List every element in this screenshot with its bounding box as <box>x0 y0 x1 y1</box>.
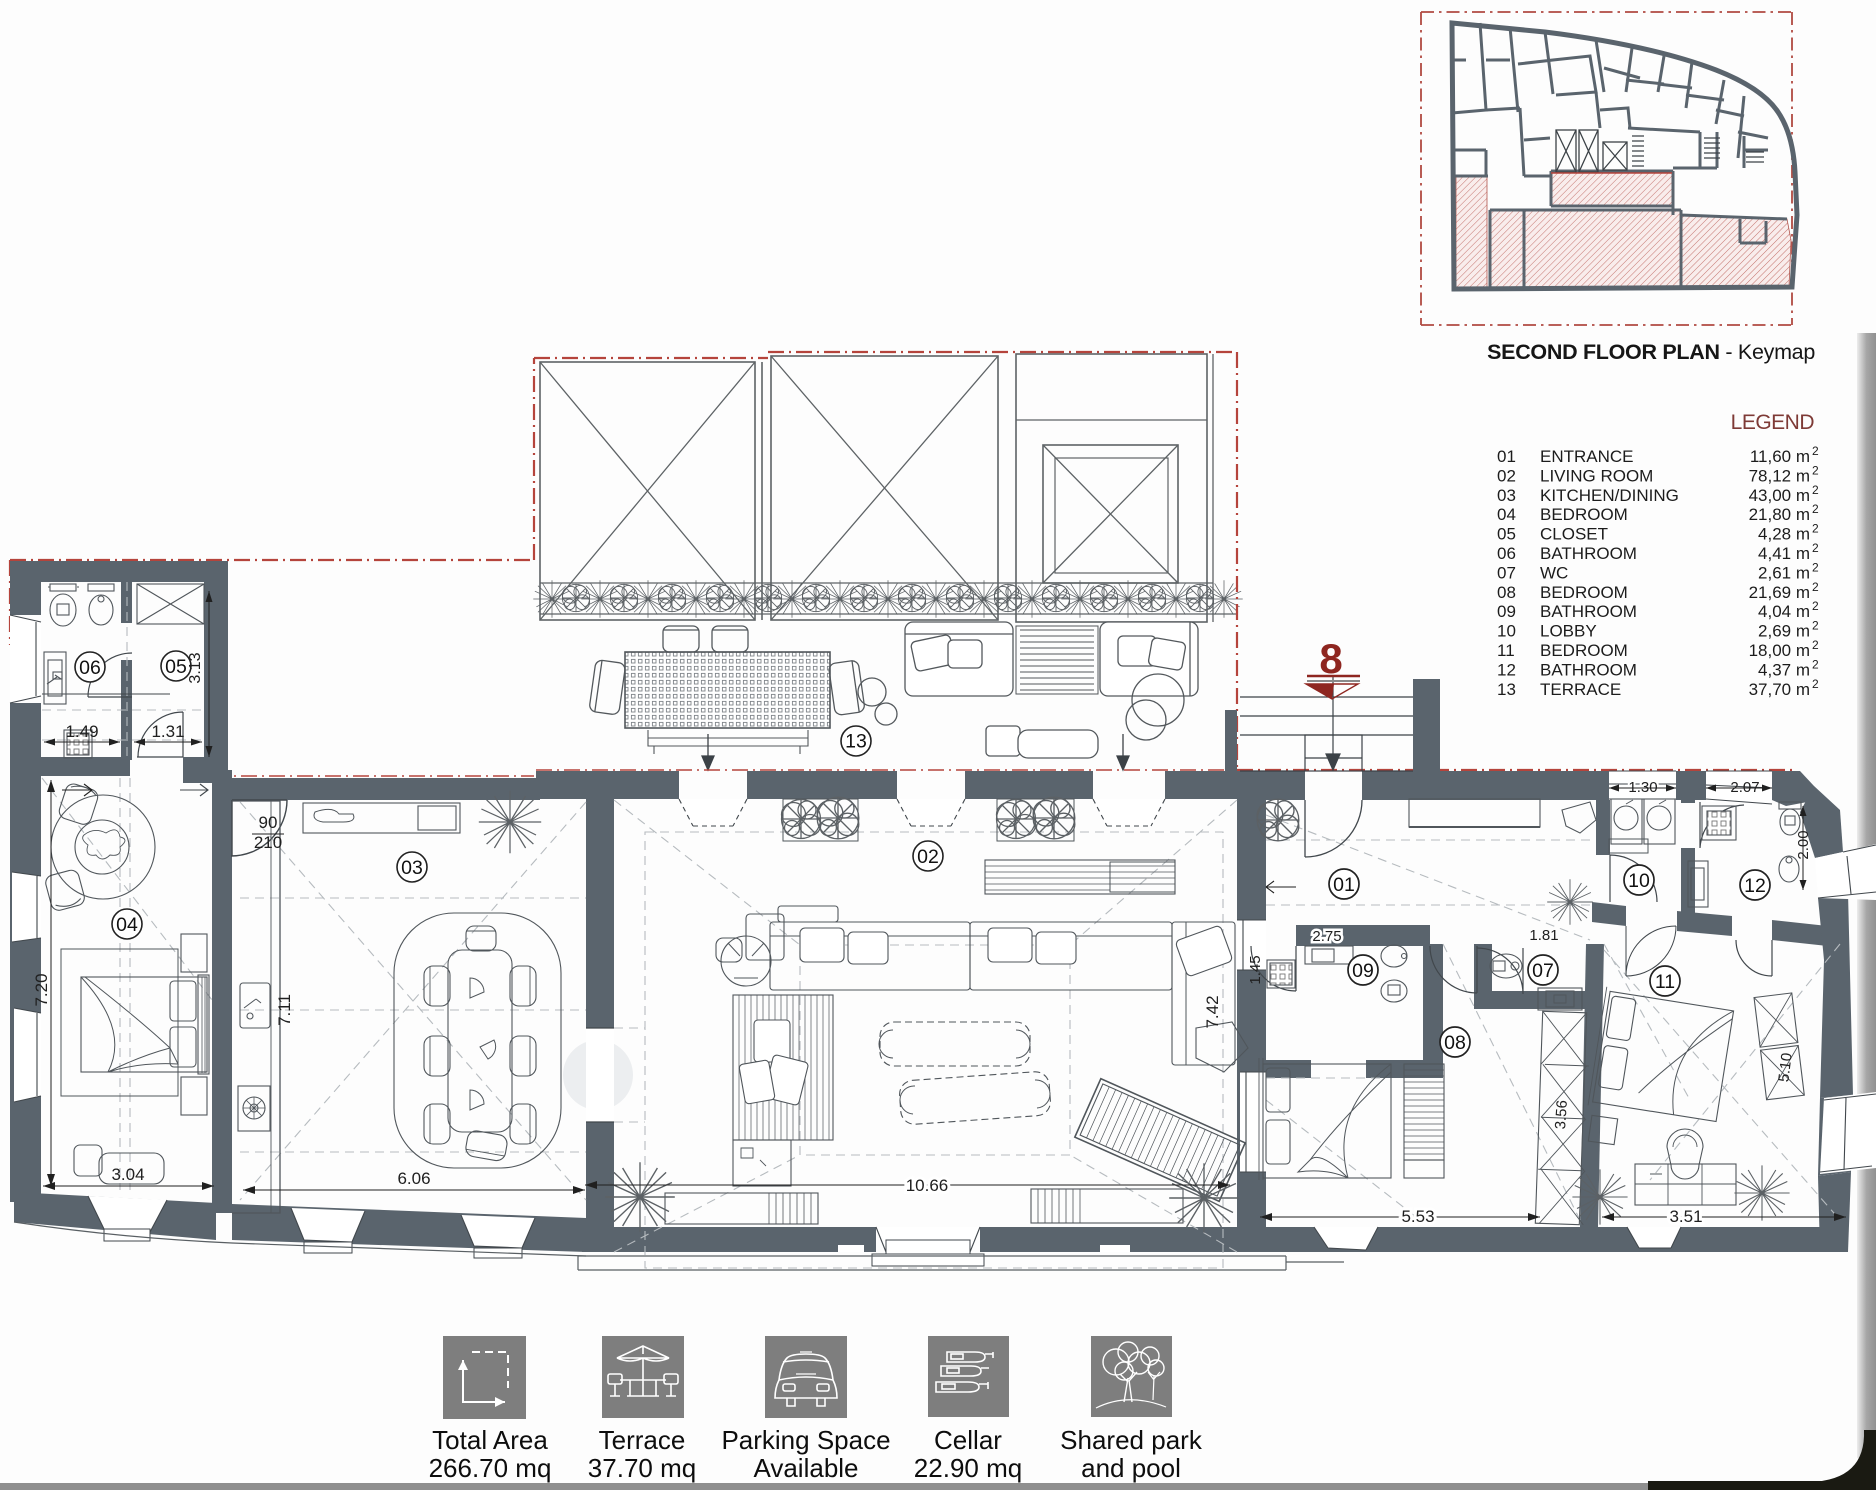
svg-text:4,04 m: 4,04 m <box>1758 602 1810 621</box>
svg-text:05: 05 <box>1497 525 1516 544</box>
svg-text:CLOSET: CLOSET <box>1540 525 1608 544</box>
svg-text:78,12 m: 78,12 m <box>1749 466 1810 485</box>
svg-text:Total Area: Total Area <box>432 1425 548 1455</box>
svg-text:12: 12 <box>1744 875 1766 897</box>
svg-text:13: 13 <box>1497 680 1516 699</box>
svg-text:WC: WC <box>1540 563 1568 582</box>
svg-text:10: 10 <box>1497 622 1516 641</box>
svg-text:06: 06 <box>79 657 101 679</box>
svg-text:2: 2 <box>1812 502 1819 516</box>
svg-text:ENTRANCE: ENTRANCE <box>1540 447 1634 466</box>
svg-text:37,70 m: 37,70 m <box>1749 680 1810 699</box>
svg-text:7.11: 7.11 <box>275 994 294 1026</box>
svg-text:08: 08 <box>1444 1032 1466 1054</box>
svg-text:5.10: 5.10 <box>1775 1052 1795 1083</box>
svg-text:KITCHEN/DINING: KITCHEN/DINING <box>1540 486 1679 505</box>
svg-text:1.31: 1.31 <box>151 722 184 741</box>
svg-text:7.20: 7.20 <box>32 973 51 1006</box>
svg-text:43,00 m: 43,00 m <box>1749 486 1810 505</box>
svg-text:LOBBY: LOBBY <box>1540 622 1597 641</box>
svg-text:266.70 mq: 266.70 mq <box>429 1453 552 1483</box>
svg-text:Available: Available <box>753 1453 858 1483</box>
svg-text:03: 03 <box>401 857 423 879</box>
svg-text:3.13: 3.13 <box>187 652 204 683</box>
svg-text:37.70 mq: 37.70 mq <box>588 1453 696 1483</box>
svg-text:90: 90 <box>259 813 278 832</box>
svg-text:4,37 m: 4,37 m <box>1758 660 1810 679</box>
svg-text:TERRACE: TERRACE <box>1540 680 1621 699</box>
svg-text:4,41 m: 4,41 m <box>1758 544 1810 563</box>
svg-text:and pool: and pool <box>1081 1453 1181 1483</box>
svg-text:11: 11 <box>1655 971 1675 993</box>
svg-text:BEDROOM: BEDROOM <box>1540 505 1628 524</box>
svg-text:04: 04 <box>116 914 138 936</box>
svg-text:LIVING ROOM: LIVING ROOM <box>1540 466 1653 485</box>
svg-text:6.06: 6.06 <box>397 1169 430 1188</box>
svg-text:Shared park: Shared park <box>1060 1425 1203 1455</box>
svg-text:BEDROOM: BEDROOM <box>1540 641 1628 660</box>
svg-text:02: 02 <box>1497 466 1516 485</box>
svg-text:LEGEND: LEGEND <box>1731 411 1815 434</box>
svg-text:01: 01 <box>1333 874 1355 896</box>
svg-text:2: 2 <box>1812 463 1819 477</box>
svg-text:05: 05 <box>165 656 187 678</box>
svg-text:2: 2 <box>1812 483 1819 497</box>
svg-text:1.49: 1.49 <box>65 722 98 741</box>
svg-text:02: 02 <box>917 846 939 868</box>
svg-text:2: 2 <box>1812 619 1819 633</box>
svg-text:1.81: 1.81 <box>1529 927 1558 944</box>
svg-text:06: 06 <box>1497 544 1516 563</box>
svg-text:03: 03 <box>1497 486 1516 505</box>
svg-text:21,69 m: 21,69 m <box>1749 583 1810 602</box>
svg-text:2: 2 <box>1812 580 1819 594</box>
svg-text:2: 2 <box>1812 444 1819 458</box>
svg-text:12: 12 <box>1497 660 1516 679</box>
svg-text:2.07: 2.07 <box>1730 779 1759 796</box>
svg-text:Terrace: Terrace <box>599 1425 686 1455</box>
svg-text:2: 2 <box>1812 677 1819 691</box>
svg-text:10.66: 10.66 <box>906 1176 949 1195</box>
svg-text:2.00: 2.00 <box>1795 830 1812 859</box>
svg-text:3.56: 3.56 <box>1552 1100 1571 1130</box>
svg-text:13: 13 <box>845 731 867 753</box>
svg-text:2: 2 <box>1812 599 1819 613</box>
svg-text:SECOND FLOOR PLAN - Keymap: SECOND FLOOR PLAN - Keymap <box>1487 340 1815 364</box>
svg-text:3.51: 3.51 <box>1669 1207 1702 1226</box>
svg-text:BATHROOM: BATHROOM <box>1540 602 1637 621</box>
svg-text:01: 01 <box>1497 447 1516 466</box>
svg-text:11,60 m: 11,60 m <box>1750 447 1810 466</box>
svg-text:BATHROOM: BATHROOM <box>1540 544 1637 563</box>
svg-text:2: 2 <box>1812 522 1819 536</box>
svg-text:5.53: 5.53 <box>1401 1207 1434 1226</box>
svg-text:210: 210 <box>254 833 282 852</box>
svg-text:08: 08 <box>1497 583 1516 602</box>
svg-text:04: 04 <box>1497 505 1516 524</box>
svg-text:2,61 m: 2,61 m <box>1758 563 1810 582</box>
svg-text:22.90 mq: 22.90 mq <box>914 1453 1022 1483</box>
svg-text:10: 10 <box>1628 870 1650 892</box>
svg-text:Cellar: Cellar <box>934 1425 1002 1455</box>
svg-text:1.45: 1.45 <box>1247 955 1264 984</box>
svg-text:21,80 m: 21,80 m <box>1749 505 1810 524</box>
svg-text:BEDROOM: BEDROOM <box>1540 583 1628 602</box>
svg-text:BATHROOM: BATHROOM <box>1540 660 1637 679</box>
svg-text:Parking Space: Parking Space <box>721 1425 890 1455</box>
svg-text:4,28 m: 4,28 m <box>1758 525 1810 544</box>
svg-text:2: 2 <box>1812 638 1819 652</box>
svg-text:3.04: 3.04 <box>111 1165 144 1184</box>
svg-text:09: 09 <box>1352 960 1374 982</box>
svg-text:2: 2 <box>1812 541 1819 555</box>
svg-text:2.75: 2.75 <box>1312 928 1341 945</box>
svg-text:2,69 m: 2,69 m <box>1758 622 1810 641</box>
svg-text:09: 09 <box>1497 602 1516 621</box>
svg-text:07: 07 <box>1532 960 1554 982</box>
svg-text:7.42: 7.42 <box>1203 995 1222 1028</box>
svg-text:11: 11 <box>1497 641 1515 660</box>
svg-text:07: 07 <box>1497 563 1516 582</box>
svg-text:2: 2 <box>1812 560 1819 574</box>
svg-text:2: 2 <box>1812 657 1819 671</box>
svg-text:18,00 m: 18,00 m <box>1749 641 1810 660</box>
